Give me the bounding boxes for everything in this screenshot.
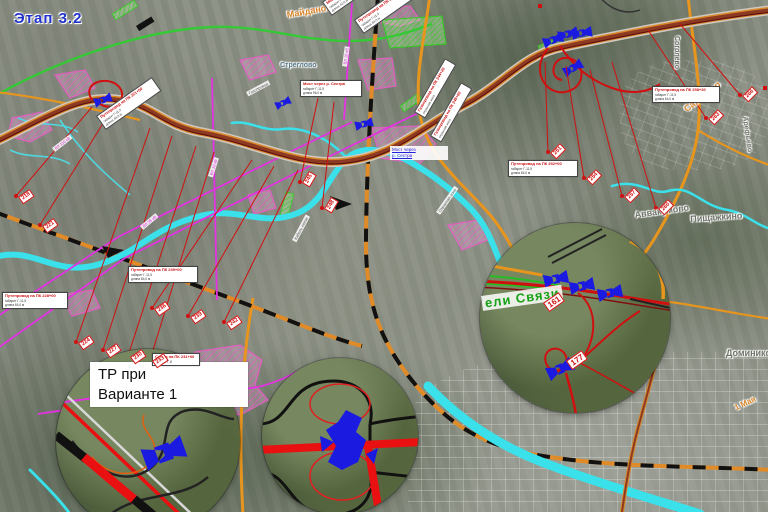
callout-subtext: длина 96,0 м [303,91,359,95]
bridge-link-label[interactable]: Мост через р. Сестра [390,146,448,160]
callout-subtext: длина 84,0 м [511,171,575,175]
place-name-label: Стреглово [280,62,317,69]
inset-detail-middle [262,358,418,512]
survey-leader-line [150,152,214,360]
survey-leader-line [188,166,274,316]
green-zone-polygon [382,16,446,48]
stage-title: Этап 3.2 [14,10,82,27]
survey-leader-line [545,62,548,152]
variant-caption-line1: ТР при [98,365,240,385]
structure-callout: Мост через р. Сестрагабарит Г-11,5длина … [300,80,362,97]
map-canvas[interactable]: ели Связи 161 177 ТР при Варианте 1 Мост… [0,0,768,512]
variant-green-bars [112,0,563,219]
survey-leader-line [103,136,172,350]
bridge-link-line2: р. Сестра [392,153,446,159]
callout-subtext: длина 84,0 м [5,303,65,307]
structure-callout: Путепровод на ПК 258+30габарит Г-11,5дли… [652,86,720,103]
place-name-label: Доминиково [726,348,768,358]
survey-leader-line [76,128,150,342]
variant-caption-line2: Варианте 1 [98,385,240,405]
callout-subtext: длина 84,0 м [131,277,195,281]
structure-callout: Путепровод на ПК 239+00габарит Г-11,5дли… [128,266,198,283]
place-name-label: Соголево [673,36,680,69]
variant-caption: ТР при Варианте 1 [90,362,248,407]
structure-callout: Путепровод на ПК 228+00габарит Г-11,5дли… [2,292,68,309]
structure-callout: Путепровод на ПК 252+00габарит Г-11,5дли… [508,160,578,177]
callout-subtext: длина 64,0 м [655,97,717,101]
inset-detail-right [480,223,670,413]
